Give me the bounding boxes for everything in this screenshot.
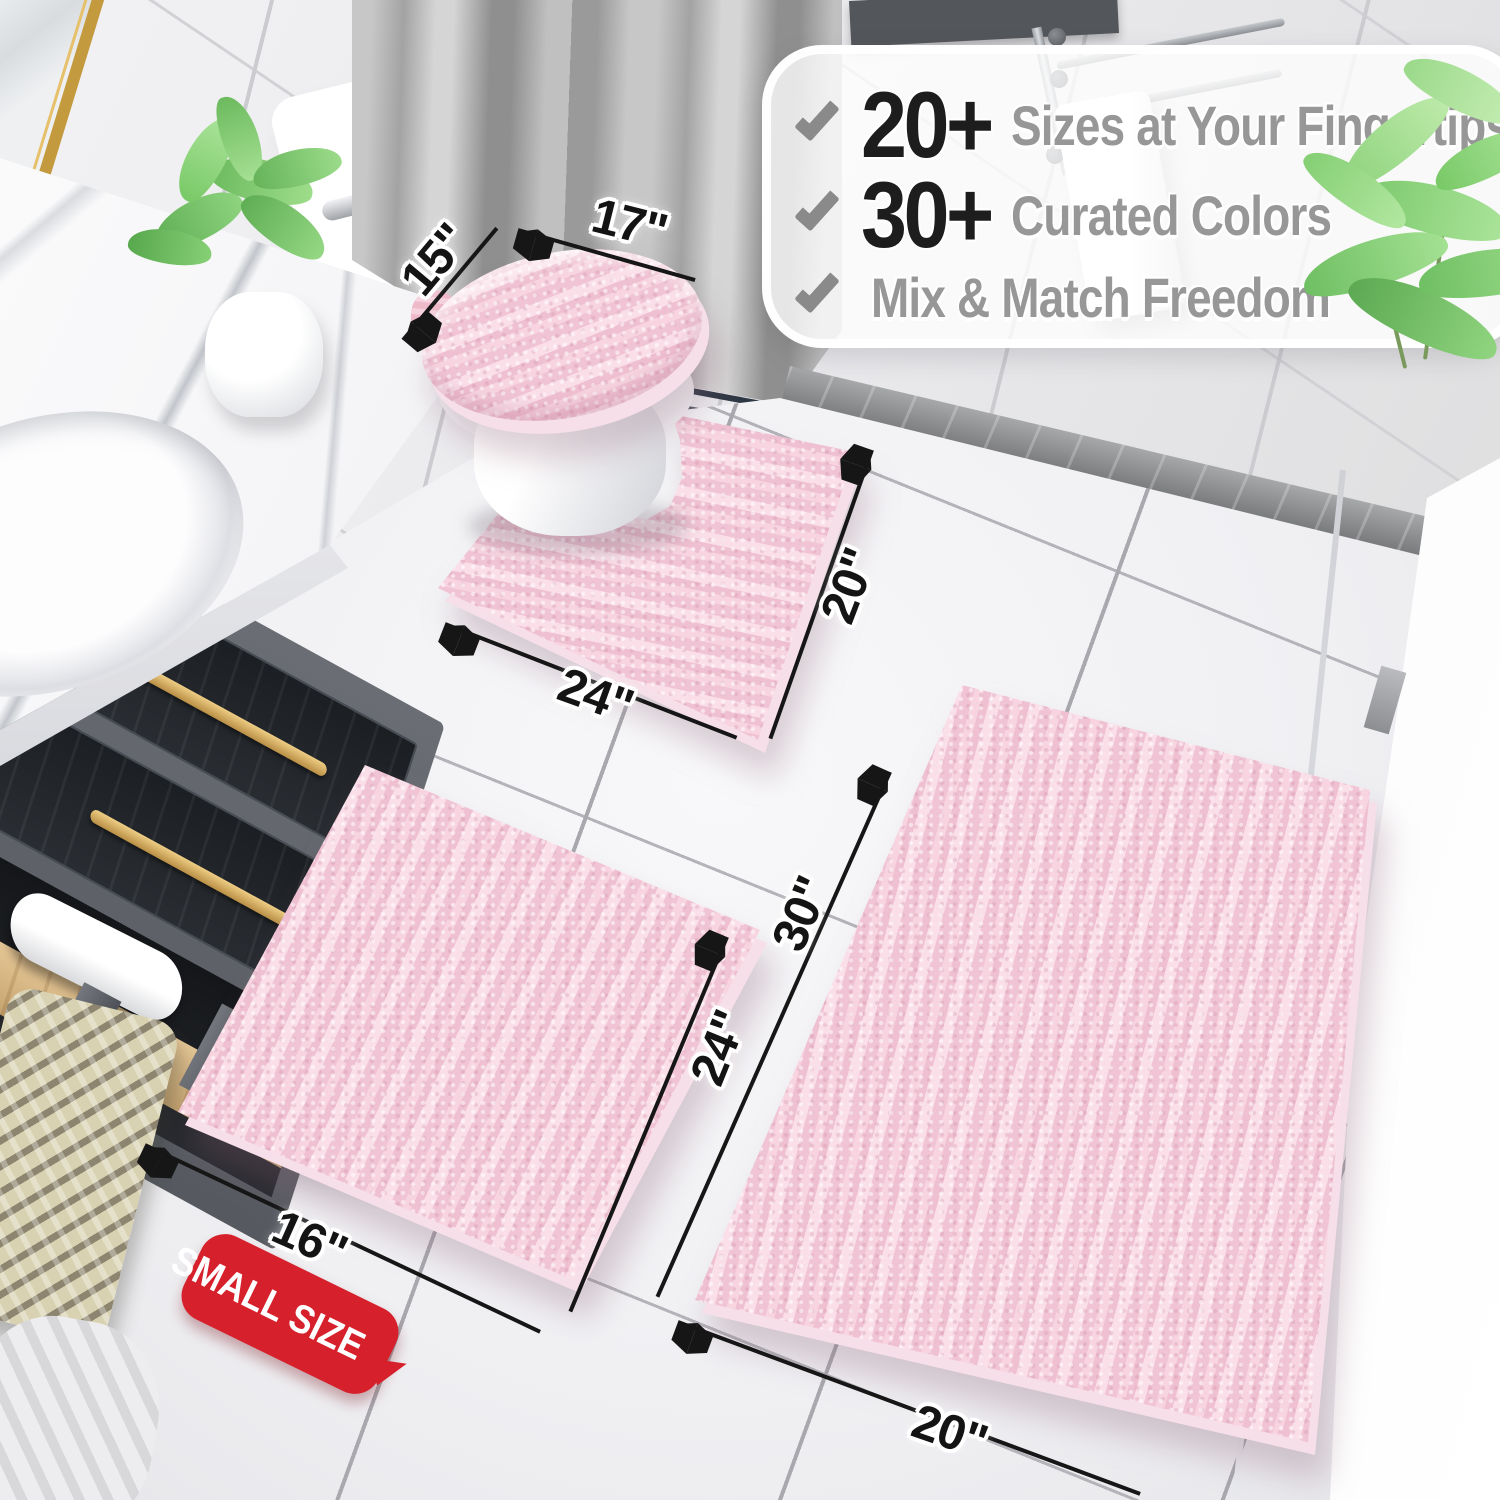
check-icon bbox=[794, 266, 840, 313]
callout-row-colors: 30+ Curated Colors bbox=[795, 172, 1402, 258]
product-image: MISQ 15" 17" 24" 20" 16" 24" 30" 2 bbox=[0, 0, 1500, 1500]
check-icon bbox=[794, 94, 840, 141]
callout-label: Mix & Match Freedom bbox=[871, 265, 1330, 330]
plant-pot bbox=[205, 292, 323, 417]
callout-label: Curated Colors bbox=[1011, 183, 1331, 248]
check-icon bbox=[794, 184, 840, 231]
callout-stat: 30+ bbox=[861, 161, 993, 269]
towel-rack-knob bbox=[1048, 28, 1066, 46]
